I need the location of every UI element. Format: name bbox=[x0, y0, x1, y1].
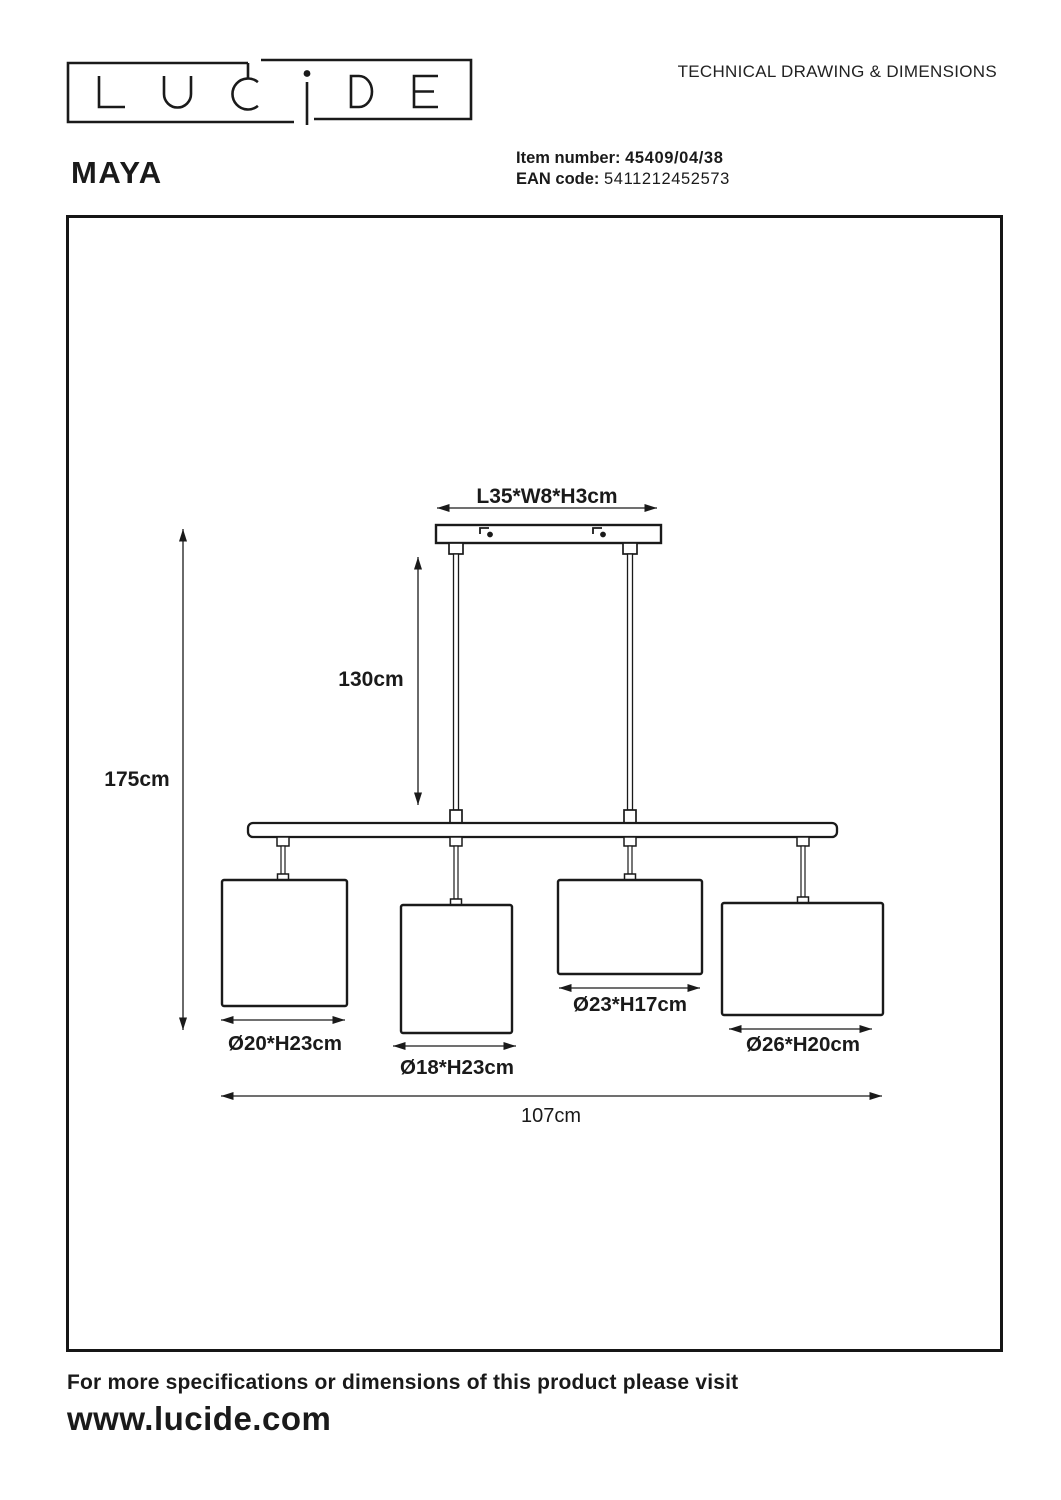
ean-code-row: EAN code: 5411212452573 bbox=[516, 169, 730, 190]
shade3-dimension-label: Ø23*H17cm bbox=[573, 993, 687, 1016]
pendant-rod-2 bbox=[450, 837, 462, 905]
pendant-rod-1 bbox=[277, 837, 289, 880]
datasheet-page: TECHNICAL DRAWING & DIMENSIONS MAYA Item… bbox=[0, 0, 1061, 1500]
pendant-rod-3 bbox=[624, 837, 636, 880]
shade-2 bbox=[401, 905, 512, 1033]
logo-letter-i-dot bbox=[304, 70, 311, 77]
logo-letter-e bbox=[414, 76, 438, 107]
lucide-logo-graphic bbox=[65, 57, 475, 131]
item-number-value: 45409/04/38 bbox=[625, 149, 723, 167]
shade1-dimension-label: Ø20*H23cm bbox=[228, 1032, 342, 1055]
suspension-rod-left bbox=[449, 543, 463, 823]
logo-letter-l bbox=[99, 76, 125, 107]
shade4-dimension-label: Ø26*H20cm bbox=[746, 1033, 860, 1056]
technical-drawing-frame: L35*W8*H3cm 130cm 175cm Ø20*H23cm Ø18*H2… bbox=[66, 215, 1003, 1352]
technical-drawing: L35*W8*H3cm 130cm 175cm Ø20*H23cm Ø18*H2… bbox=[69, 218, 1000, 1349]
product-info-block: Item number: 45409/04/38 EAN code: 54112… bbox=[516, 148, 730, 190]
logo-letter-d bbox=[351, 76, 372, 107]
item-number-row: Item number: 45409/04/38 bbox=[516, 148, 730, 169]
lucide-logo bbox=[65, 57, 475, 136]
shade-1 bbox=[222, 880, 347, 1006]
shade-3 bbox=[558, 880, 702, 974]
page-title: TECHNICAL DRAWING & DIMENSIONS bbox=[678, 62, 997, 82]
footer-url: www.lucide.com bbox=[67, 1400, 738, 1438]
canopy-dimension-label: L35*W8*H3cm bbox=[476, 485, 617, 508]
shade-4 bbox=[722, 903, 883, 1015]
shade2-dimension-label: Ø18*H23cm bbox=[400, 1056, 514, 1079]
logo-letter-u bbox=[164, 76, 191, 108]
total-width-dimension-label: 107cm bbox=[521, 1105, 581, 1127]
ean-code-label: EAN code: bbox=[516, 170, 599, 188]
pendant-rod-4 bbox=[797, 837, 809, 903]
footer: For more specifications or dimensions of… bbox=[67, 1371, 738, 1438]
ceiling-canopy bbox=[436, 525, 661, 543]
suspension-rod-right bbox=[623, 543, 637, 823]
footer-text: For more specifications or dimensions of… bbox=[67, 1371, 738, 1395]
logo-box-left bbox=[68, 63, 294, 122]
total-height-dimension-label: 175cm bbox=[104, 768, 169, 791]
crossbar bbox=[248, 823, 837, 837]
ean-code-value: 5411212452573 bbox=[604, 170, 730, 188]
item-number-label: Item number: bbox=[516, 149, 621, 167]
product-name: MAYA bbox=[71, 155, 163, 191]
logo-letter-c bbox=[232, 79, 257, 110]
drop-dimension-label: 130cm bbox=[338, 668, 403, 691]
logo-box-right bbox=[261, 60, 471, 119]
